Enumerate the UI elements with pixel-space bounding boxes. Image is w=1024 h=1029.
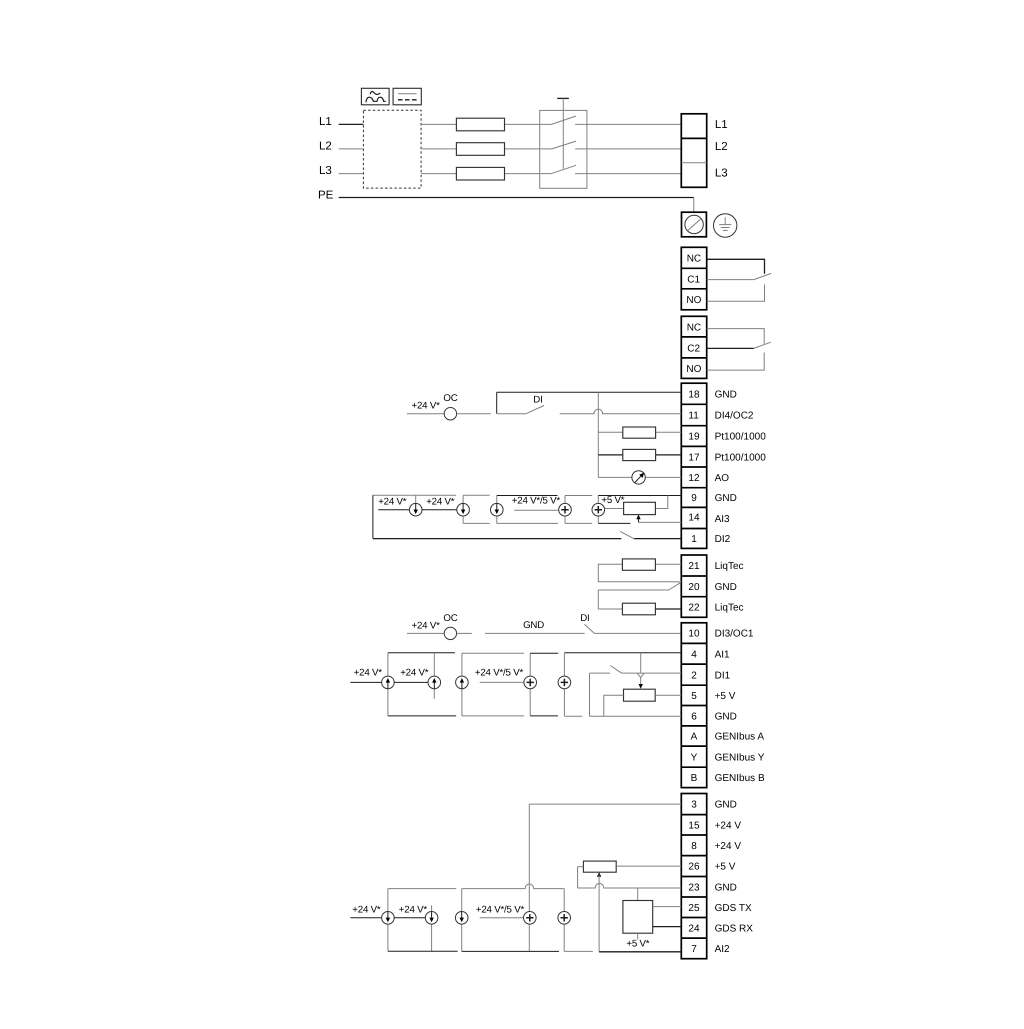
svg-text:+5 V*: +5 V* [626, 938, 649, 949]
svg-text:GND: GND [523, 620, 544, 631]
svg-text:DI3/OC1: DI3/OC1 [715, 629, 754, 640]
svg-text:AO: AO [715, 473, 730, 484]
svg-text:2: 2 [691, 670, 697, 681]
svg-text:8: 8 [691, 841, 697, 852]
svg-text:DI: DI [580, 613, 589, 624]
svg-text:NC: NC [687, 323, 701, 334]
svg-text:DI: DI [533, 395, 542, 406]
svg-text:+24 V*: +24 V* [426, 497, 455, 508]
svg-text:AI3: AI3 [715, 514, 730, 525]
svg-text:AI1: AI1 [715, 649, 730, 660]
svg-text:12: 12 [688, 473, 700, 484]
svg-text:22: 22 [688, 603, 700, 614]
svg-text:+24 V: +24 V [715, 820, 742, 831]
svg-text:+24 V*: +24 V* [354, 668, 383, 679]
svg-text:C2: C2 [687, 344, 700, 355]
svg-text:NO: NO [686, 295, 701, 306]
svg-text:+24 V*: +24 V* [352, 904, 381, 915]
svg-text:9: 9 [691, 493, 697, 504]
svg-text:GND: GND [715, 711, 737, 722]
svg-text:C1: C1 [687, 274, 700, 285]
svg-text:A: A [691, 732, 698, 743]
svg-text:20: 20 [688, 582, 700, 593]
svg-text:+24 V*: +24 V* [400, 668, 429, 679]
svg-text:11: 11 [688, 411, 699, 422]
svg-text:GND: GND [715, 582, 737, 593]
svg-text:+24 V*: +24 V* [412, 620, 441, 631]
svg-text:OC: OC [443, 613, 457, 624]
svg-text:OC: OC [443, 393, 457, 404]
svg-text:+5 V*: +5 V* [601, 495, 624, 506]
svg-text:24: 24 [688, 923, 700, 934]
svg-text:25: 25 [688, 903, 700, 914]
svg-text:21: 21 [688, 561, 700, 572]
svg-text:GND: GND [715, 882, 737, 893]
svg-text:L1: L1 [319, 116, 332, 128]
svg-text:14: 14 [688, 513, 700, 524]
svg-text:L3: L3 [715, 167, 728, 179]
svg-text:26: 26 [688, 862, 700, 873]
svg-text:+24 V*: +24 V* [378, 497, 407, 508]
svg-text:+24 V: +24 V [715, 841, 742, 852]
svg-text:6: 6 [691, 711, 697, 722]
svg-text:4: 4 [691, 649, 697, 660]
svg-text:+24 V*: +24 V* [412, 400, 441, 411]
svg-text:+24 V*/5 V*: +24 V*/5 V* [512, 496, 561, 507]
svg-text:+24 V*/5 V*: +24 V*/5 V* [475, 668, 524, 679]
svg-text:3: 3 [691, 800, 697, 811]
svg-text:GDS RX: GDS RX [715, 923, 754, 934]
svg-text:GENIbus A: GENIbus A [715, 732, 765, 743]
svg-text:LiqTec: LiqTec [715, 561, 744, 572]
svg-text:GND: GND [715, 800, 737, 811]
svg-text:GDS TX: GDS TX [715, 903, 752, 914]
svg-text:Y: Y [691, 752, 698, 763]
svg-text:1: 1 [691, 534, 697, 545]
svg-text:L2: L2 [715, 141, 728, 153]
svg-text:GENIbus B: GENIbus B [715, 773, 765, 784]
svg-text:L2: L2 [319, 140, 332, 152]
svg-text:AI2: AI2 [715, 944, 730, 955]
svg-text:23: 23 [688, 882, 700, 893]
svg-text:+5 V: +5 V [715, 862, 736, 873]
svg-text:NC: NC [687, 253, 701, 264]
svg-text:LiqTec: LiqTec [715, 603, 744, 614]
svg-text:GENIbus Y: GENIbus Y [715, 752, 765, 763]
svg-text:DI1: DI1 [715, 670, 731, 681]
svg-text:5: 5 [691, 691, 697, 702]
svg-text:15: 15 [688, 820, 700, 831]
svg-text:7: 7 [691, 944, 697, 955]
svg-text:NO: NO [686, 364, 701, 375]
svg-text:GND: GND [715, 389, 737, 400]
svg-text:+24 V*/5 V*: +24 V*/5 V* [476, 904, 525, 915]
svg-text:GND: GND [715, 493, 737, 504]
svg-text:PE: PE [318, 190, 334, 202]
svg-text:L1: L1 [715, 119, 728, 131]
svg-text:Pt100/1000: Pt100/1000 [715, 452, 767, 463]
svg-text:17: 17 [688, 452, 700, 463]
svg-text:+5 V: +5 V [715, 691, 736, 702]
svg-text:Pt100/1000: Pt100/1000 [715, 432, 767, 443]
svg-text:DI4/OC2: DI4/OC2 [715, 411, 754, 422]
svg-text:L3: L3 [319, 165, 332, 177]
svg-text:10: 10 [688, 629, 700, 640]
svg-text:18: 18 [688, 389, 700, 400]
svg-text:19: 19 [688, 432, 700, 443]
svg-text:DI2: DI2 [715, 534, 731, 545]
svg-text:B: B [691, 773, 698, 784]
svg-text:+24 V*: +24 V* [399, 904, 428, 915]
